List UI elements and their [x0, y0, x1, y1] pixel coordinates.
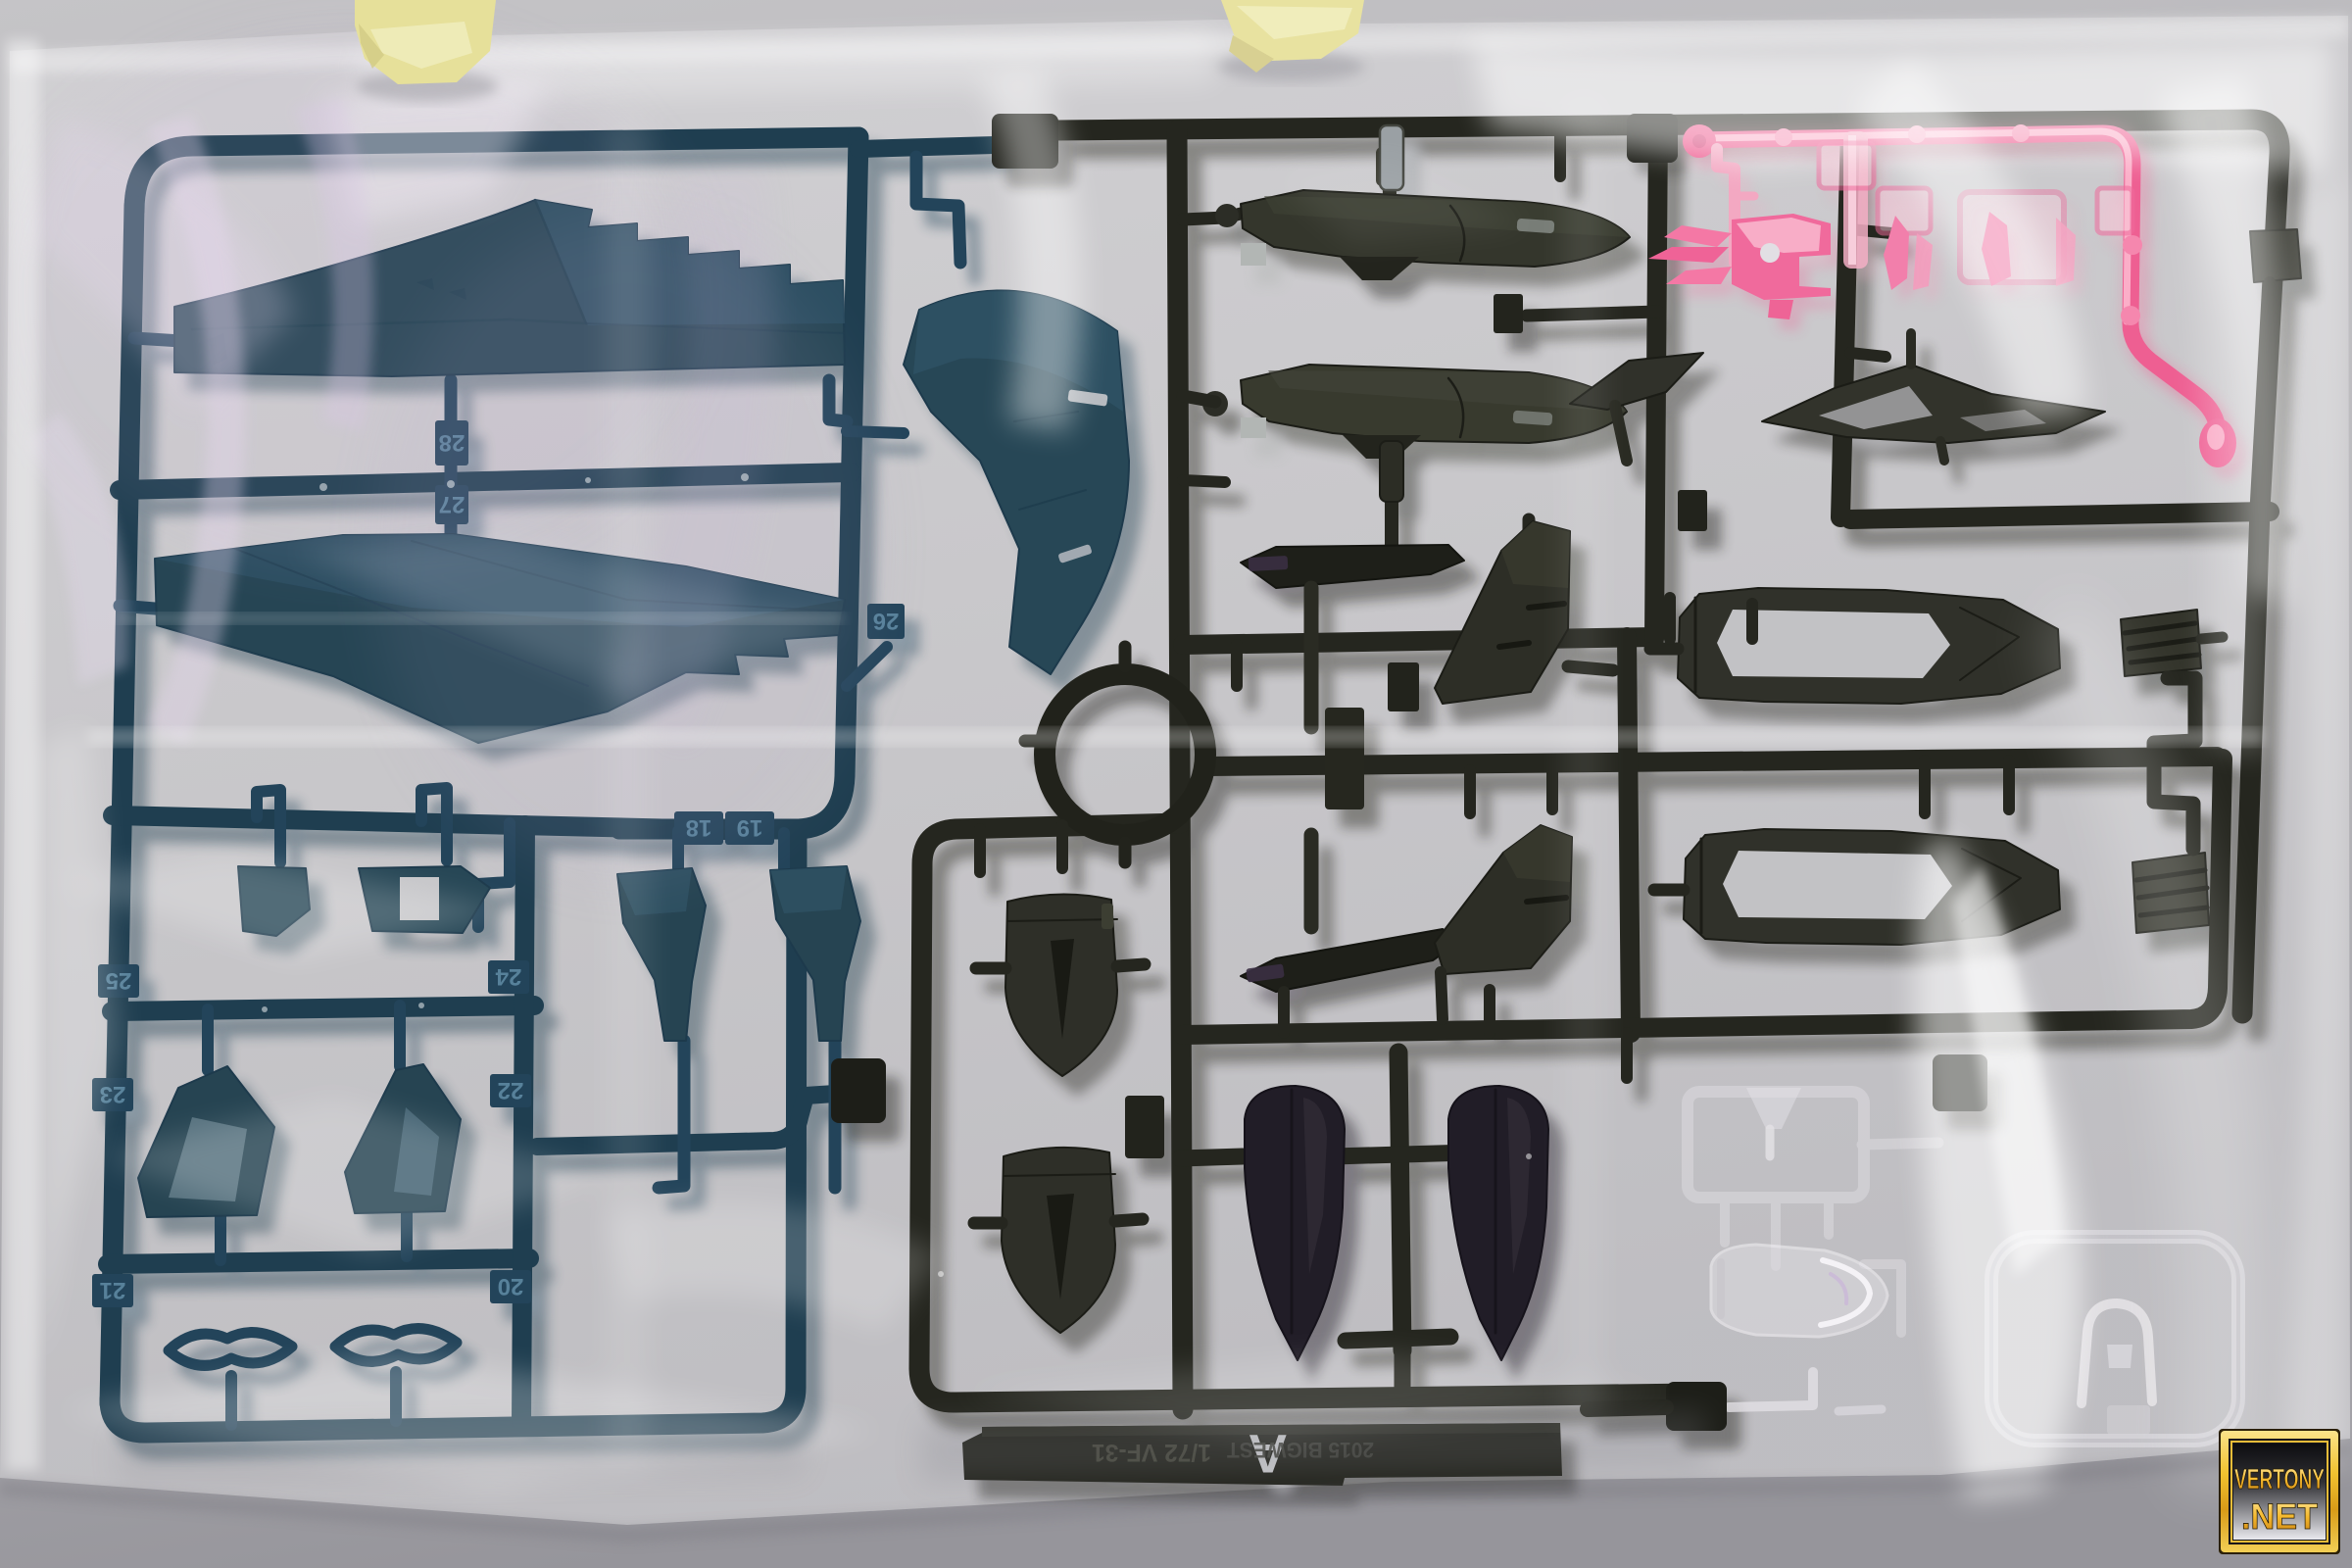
svg-text:.NET: .NET — [2241, 1496, 2318, 1537]
svg-text:VERTONY: VERTONY — [2234, 1464, 2325, 1495]
